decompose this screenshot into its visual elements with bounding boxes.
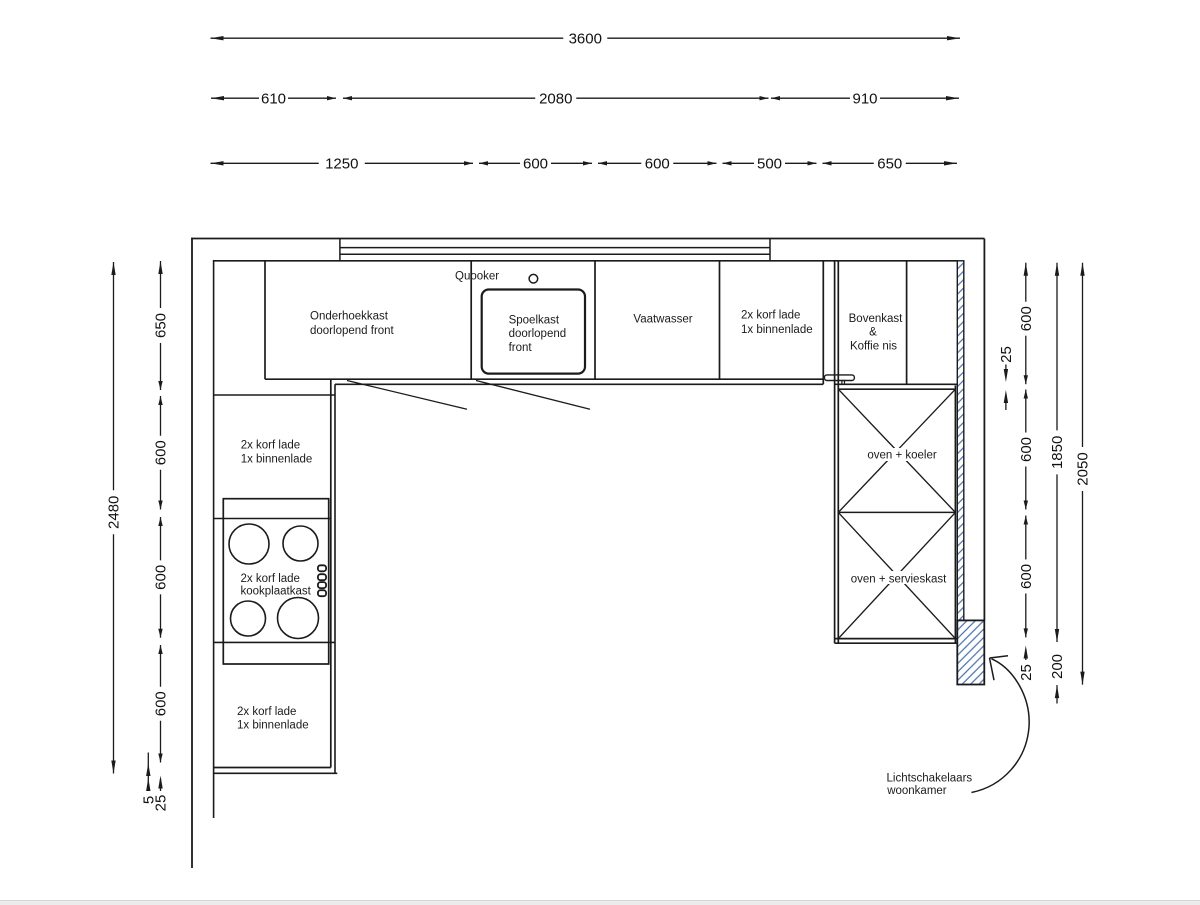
- svg-text:500: 500: [757, 156, 782, 173]
- svg-text:200: 200: [1049, 654, 1066, 679]
- svg-text:&: &: [869, 327, 877, 339]
- svg-text:woonkamer: woonkamer: [886, 785, 947, 797]
- svg-text:doorlopend front: doorlopend front: [310, 325, 395, 337]
- svg-text:600: 600: [1018, 437, 1035, 462]
- svg-text:1x binnenlade: 1x binnenlade: [237, 719, 309, 731]
- svg-text:25: 25: [1018, 664, 1035, 681]
- svg-text:910: 910: [852, 90, 877, 107]
- svg-text:1850: 1850: [1049, 436, 1066, 469]
- svg-text:25: 25: [998, 346, 1015, 363]
- svg-text:2x korf lade: 2x korf lade: [241, 573, 300, 585]
- svg-text:600: 600: [1018, 306, 1035, 331]
- svg-text:650: 650: [877, 156, 902, 173]
- svg-text:1x binnenlade: 1x binnenlade: [741, 324, 813, 336]
- svg-text:600: 600: [645, 156, 670, 173]
- svg-text:610: 610: [261, 90, 286, 107]
- svg-text:kookplaatkast: kookplaatkast: [241, 586, 312, 598]
- svg-text:600: 600: [153, 565, 170, 590]
- svg-text:2480: 2480: [106, 496, 123, 529]
- svg-text:600: 600: [523, 156, 548, 173]
- svg-text:2x korf lade: 2x korf lade: [237, 706, 296, 718]
- svg-text:Bovenkast: Bovenkast: [849, 313, 904, 325]
- svg-text:Lichtschakelaars: Lichtschakelaars: [887, 773, 973, 785]
- svg-text:Onderhoekkast: Onderhoekkast: [310, 310, 389, 322]
- svg-text:Spoelkast: Spoelkast: [509, 315, 560, 327]
- svg-text:oven + koeler: oven + koeler: [867, 450, 937, 462]
- svg-text:front: front: [509, 342, 533, 354]
- svg-text:2x korf lade: 2x korf lade: [741, 310, 800, 322]
- svg-text:doorlopend: doorlopend: [509, 328, 567, 340]
- svg-text:2080: 2080: [539, 90, 572, 107]
- svg-text:2x korf lade: 2x korf lade: [241, 440, 300, 452]
- svg-text:5: 5: [141, 796, 158, 804]
- svg-text:650: 650: [153, 313, 170, 338]
- svg-text:Quooker: Quooker: [455, 271, 499, 283]
- svg-text:Koffie nis: Koffie nis: [850, 340, 897, 352]
- svg-text:600: 600: [153, 440, 170, 465]
- svg-text:600: 600: [1018, 564, 1035, 589]
- svg-text:2050: 2050: [1075, 452, 1092, 485]
- svg-text:oven + servieskast: oven + servieskast: [851, 574, 947, 586]
- svg-text:1x binnenlade: 1x binnenlade: [241, 454, 313, 466]
- svg-text:3600: 3600: [569, 30, 602, 47]
- svg-text:1250: 1250: [325, 156, 358, 173]
- svg-text:Vaatwasser: Vaatwasser: [633, 314, 692, 326]
- svg-text:600: 600: [153, 691, 170, 716]
